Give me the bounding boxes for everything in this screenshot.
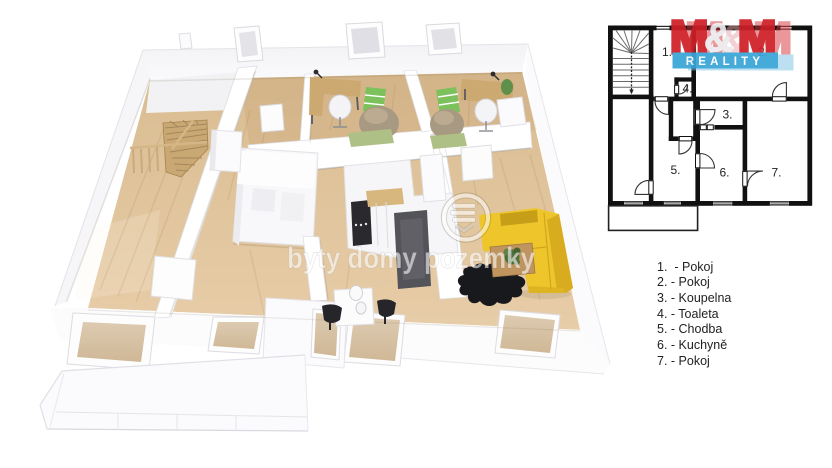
svg-text:REALITY: REALITY [686,56,765,68]
svg-text:byty domy pozemky: byty domy pozemky [287,242,535,275]
svg-text:5.: 5. [671,163,681,177]
svg-text:4.: 4. [683,82,693,96]
svg-text:6.: 6. [720,166,730,180]
svg-text:7.: 7. [772,166,782,180]
svg-text:3.: 3. [723,108,733,122]
